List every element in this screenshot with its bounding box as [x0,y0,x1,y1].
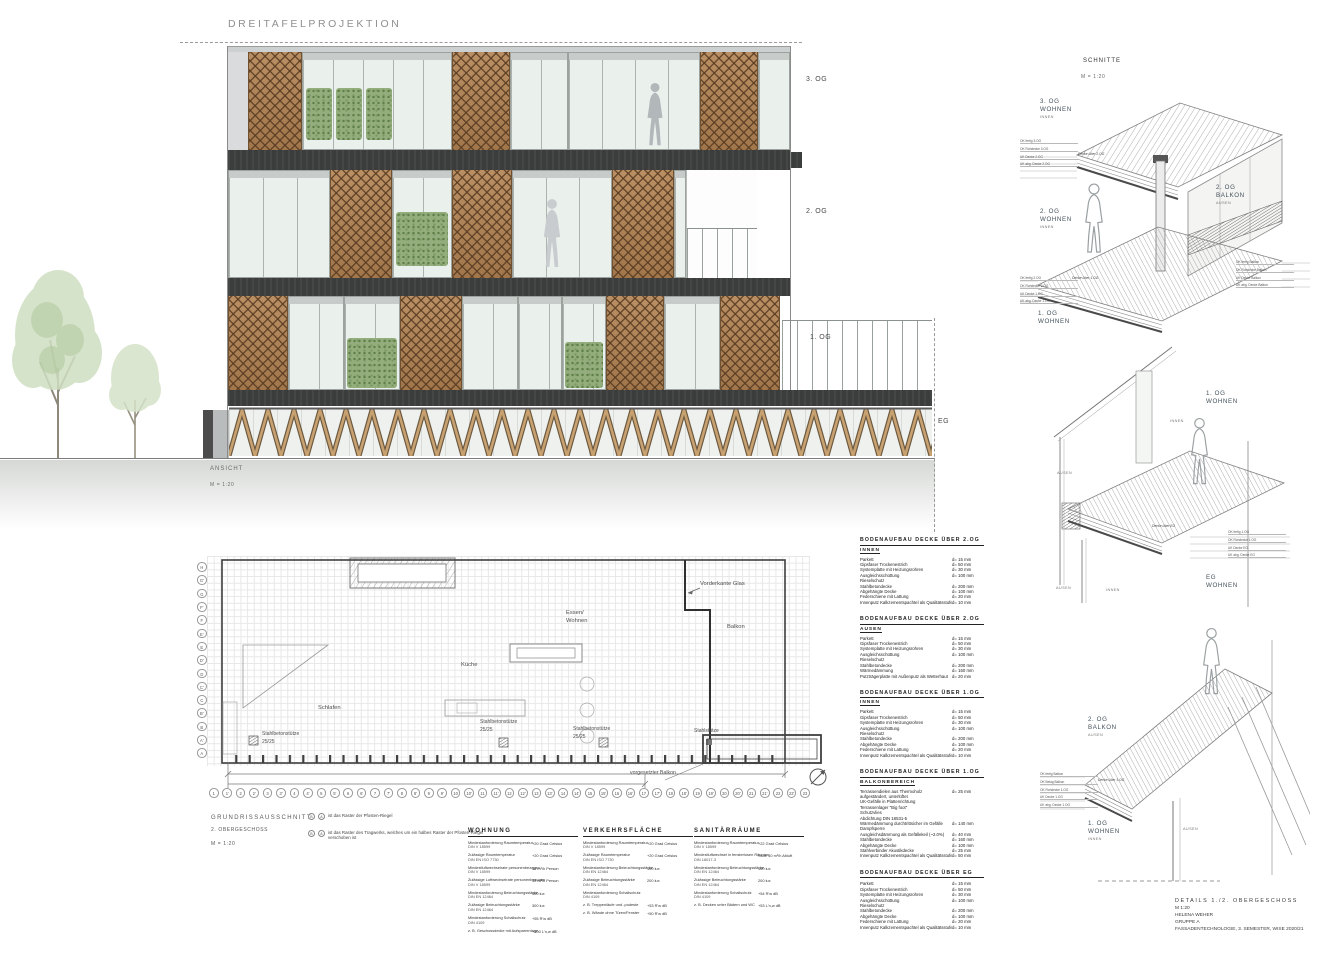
detail3-room-balkon: 2. OG BALKON AUSEN [1088,716,1117,740]
grid-bubble: 19 [693,788,703,798]
grid-bubble: 4' [303,788,313,798]
requirement-row: Mindestluftwechselrate personenbezogenDI… [468,866,578,875]
detail-room-line: WOHNEN [1040,216,1072,224]
facade-panel-glass [228,170,330,278]
details-scale: M = 1:20 [1081,74,1105,80]
requirement-row: Zulässige RaumtemperaturDIN EN ISO 7730+… [583,853,693,862]
level-marker-label: UK abg. Decke Balkon [1236,283,1294,288]
grid-bubble: 13 [532,788,542,798]
level-marker-label: UK abg. Decke 1.OG [1020,299,1078,304]
layer-name: Putzträgerplatte mit Außenputz als Wette… [860,674,952,679]
level-marker-label: OK Rohdecke 2.OG [1020,284,1078,289]
detail-room-line: WOHNEN [1206,582,1238,590]
requirement-row: Zulässige RaumtemperaturDIN EN ISO 7730+… [468,853,578,862]
drawing-sheet: DREITAFELPROJEKTION [0,0,1327,961]
layer-thickness: d= 10 mm [952,753,984,758]
layer-list: Parkettd= 15 mmGipsfaser Trockenestrichd… [860,557,984,606]
person-silhouette-icon [644,82,666,148]
level-marker-label: UK Decke 2.OG [1020,155,1078,160]
level-marker-label: OK fertig 3.OG [1020,139,1078,144]
level-markers: OK fertig 1.OGOK Rohdecke 1.OGUK Decke E… [1228,530,1286,561]
grid-bubble: 21' [760,788,770,798]
facade-panel-lattice [330,170,392,278]
requirement-row: Zulässige BeleuchtungsstärkeDIN EN 12464… [468,903,578,912]
section-title: BODENAUFBAU DECKE ÜBER 2.OG [860,616,984,625]
detail-room-line: WOHNEN [1088,828,1120,836]
requirement-row: z. B. Geschossdecke mit Aufsparrenlage+1… [468,929,578,934]
floor-label-3og: 3. OG [806,76,827,83]
column-label: Stahlbetonstütze 25/25 [573,726,610,741]
grid-bubble: 15 [585,788,595,798]
detail-room-sub: AUSEN [1216,200,1245,208]
level-marker-label: UK Decke EG [1228,546,1286,551]
grid-bubble: E' [197,629,207,639]
requirement-din: DIN 18017-3 [694,858,804,863]
requirements-verkehr: VERKEHRSFLÄCHE Mindestanforderung Raumte… [583,828,693,919]
section-title: BODENAUFBAU DECKE ÜBER 1.OG [860,690,984,699]
detail-room-line: 2. OG [1088,716,1117,724]
requirement-row: Zulässige BeleuchtungsstärkeDIN EN 12464… [694,878,804,887]
eg-entry-dark [203,410,213,458]
facade-panel-glass [288,296,344,390]
column-label-line: 25/25 [480,727,517,735]
balcony-railing [687,228,757,279]
detail1-room-2og: 2. OG WOHNEN INNEN [1040,208,1072,232]
details-title: SCHNITTE [1083,58,1121,64]
level-marker-label: OK fertig 2.OG [1020,276,1078,281]
requirement-value: +55 R'w dB [532,916,552,921]
grid-bubble: 17' [652,788,662,798]
grid-bubble: D [197,669,207,679]
titleblock-course: FASSADENTECHNOLOGIE, 3. SEMESTER, WISE 2… [1175,926,1327,933]
slab-caption: Decke über 1.OG [1098,778,1124,782]
level-marker-label: UK abg. Decke 1.OG [1040,803,1098,808]
section-subtitle: INNEN [860,700,880,706]
grid-bubble: 19' [706,788,716,798]
level-marker-label: OK Belag Balkon [1040,780,1098,785]
detail2-innen: INNEN [1170,419,1184,423]
requirement-value: 300 lux [532,891,545,896]
section-subtitle: BALKONBEREICH [860,780,915,786]
requirement-row: z. B. Treppenläufe und -podeste+53 R'w d… [583,903,693,908]
level-markers: OK fertig BalkonOK Rohdecke BalkonUK Dec… [1236,260,1294,291]
plan-caption-sub: 2. OBERGESCHOSS [211,827,268,833]
layer-list: Parkettd= 15 mmGipsfaser Trockenestrichd… [860,881,984,930]
grid-bubble: 8 [397,788,407,798]
detail-room-line: WOHNEN [1038,318,1070,326]
detail-room-line: EG [1206,574,1238,582]
plant-box [306,88,332,140]
requirement-value: 100 lux [758,866,771,871]
requirement-row: Mindestanforderung BeleuchtungsstärkeDIN… [583,866,693,875]
column-label: Stahlbetonstütze 25/25 [262,731,299,746]
titleblock-project: DETAILS 1./2. OBERGESCHOSS [1175,898,1327,905]
bodenaufbau-section: BODENAUFBAU DECKE ÜBER 2.OG INNEN Parket… [860,537,984,605]
level-marker-label: OK fertig 1.OG [1228,530,1286,535]
detail-room-line: 1. OG [1206,390,1238,398]
grid-bubble: G' [197,575,207,585]
detail-room-line: 2. OG [1040,208,1072,216]
room-label-kueche: Küche [461,662,477,668]
eg-truss-facade [229,406,932,458]
bodenaufbau-section: BODENAUFBAU DECKE ÜBER 2.OG AUSEN Parket… [860,616,984,679]
grid-bubble: 1' [222,788,232,798]
facade-panel-lattice [248,52,302,150]
grid-bubble: 8' [411,788,421,798]
layer-name: Innenputz Kalkzementspachtel als Qualitä… [860,600,952,605]
requirement-row: Mindestanforderung SchallschutzDIN 4109+… [468,916,578,925]
level-marker-label: OK Rohdecke 3.OG [1020,147,1078,152]
legend-symbol: A [318,830,325,837]
requirement-row: Mindestanforderung RaumtemperaturDIN V 1… [583,841,693,850]
requirement-value: 30 m³/h Person [532,866,559,871]
requirement-value: +50 R'w dB [647,911,667,916]
building-edge [227,46,228,458]
grid-bubble: 16' [626,788,636,798]
title-block: DETAILS 1./2. OBERGESCHOSS M 1:20 HELENA… [1175,898,1327,933]
facade-panel-lattice [606,296,664,390]
detail-room-sub: INNEN [1088,836,1120,844]
requirement-din: DIN EN 12464 [468,895,578,900]
level-marker-label: UK abg. Decke 2.OG [1020,162,1078,167]
level-marker-label: OK Rohdecke Balkon [1236,268,1294,273]
person-silhouette-icon [540,198,564,270]
requirement-value: 30 m³/h Person [532,878,559,883]
grid-bubble: 3 [263,788,273,798]
detail-room-sub: INNEN [1040,224,1072,232]
facade-panel-lattice [452,170,512,278]
level-markers: OK fertig 2.OGOK Rohdecke 2.OGUK Decke 1… [1020,276,1078,307]
plan-scale: M = 1:20 [211,841,235,847]
building-edge [790,46,791,390]
requirements-title: SANITÄRRÄUME [694,828,804,837]
facade-panel-glass [758,52,790,150]
column-label: Stahlstütze [694,728,719,734]
grid-bubble: 2 [236,788,246,798]
layer-list: Parkettd= 15 mmGipsfaser Trockenestrichd… [860,636,984,679]
requirement-value: +54 R'w dB [758,891,778,896]
requirement-row: Mindestanforderung SchallschutzDIN 4109 [583,891,693,900]
facade-panel-lattice [612,170,674,278]
facade-panel-lattice [228,296,288,390]
facade-panel-glass [510,52,568,150]
grid-bubble: B [197,722,207,732]
grid-bubble: 4 [290,788,300,798]
bodenaufbau-section: BODENAUFBAU DECKE ÜBER 1.OG BALKONBEREIC… [860,769,984,859]
layer-row: Innenputz Kalkzementspachtel als Qualitä… [860,853,984,858]
requirement-din: DIN EN 12464 [694,870,804,875]
grid-bubble: 6' [357,788,367,798]
layer-name: Innenputz Kalkzementspachtel als Qualitä… [860,853,952,858]
floor-slab [228,150,790,170]
grid-bubble: 14 [558,788,568,798]
grid-bubble: 22 [773,788,783,798]
requirement-value: +53 L'n,w dB [758,903,780,908]
facade-panel-lattice [700,52,758,150]
grid-bubble: 6 [343,788,353,798]
requirement-din: DIN EN 12464 [468,908,578,913]
plant-box [336,88,362,140]
slab-caption: Decke über 2.OG [1078,152,1104,156]
detail1-room-3og: 3. OG WOHNEN INNEN [1040,98,1072,122]
requirement-value: 200 lux [647,878,660,883]
level-markers: OK fertig 3.OGOK Rohdecke 3.OGUK Decke 2… [1020,139,1078,170]
requirement-row: z. B. Wände ohne Türen/Fenster+50 R'w dB [583,911,693,916]
requirement-row: Zulässige Luftwechselrate personenbezoge… [468,878,578,887]
bodenaufbau-section: BODENAUFBAU DECKE ÜBER 1.OG INNEN Parket… [860,690,984,758]
detail-room-line: 1. OG [1038,310,1070,318]
detail1-room-1og: 1. OG WOHNEN [1038,310,1070,325]
grid-bubble: D' [197,655,207,665]
facade-panel-glass [674,170,686,278]
requirement-value: +20 Grad Celsius [647,853,677,858]
floor-label-eg: EG [938,418,949,425]
requirements-wohnung: WOHNUNG Mindestanforderung Raumtemperatu… [468,828,578,937]
requirement-value: +20 Grad Celsius [647,841,677,846]
grid-bubble: 22' [787,788,797,798]
grid-bubble: C' [197,682,207,692]
detail-room-sub: AUSEN [1088,732,1117,740]
requirement-row: Mindestanforderung SchallschutzDIN 4109+… [694,891,804,900]
column-label-line: Stahlbetonstütze [262,731,299,739]
layer-list: Terrassendielen aus Thermoholzd= 25 mmau… [860,789,984,859]
layer-row: Innenputz Kalkzementspachtel als Qualitä… [860,925,984,930]
requirement-din: DIN V 18599 [583,845,693,850]
detail-room-line: WOHNEN [1040,106,1072,114]
requirement-din: DIN V 18599 [468,845,578,850]
floor-label-2og: 2. OG [806,208,827,215]
grid-bubble: 3' [276,788,286,798]
room-label-schlafen: Schlafen [318,705,341,711]
balcony-bay [686,170,757,278]
grid-bubble: E [197,642,207,652]
layer-row: Putzträgerplatte mit Außenputz als Wette… [860,674,984,679]
requirement-din: DIN 4109 [468,921,578,926]
level-marker-label: OK Rohdecke 1.OG [1040,788,1098,793]
floor-slab [228,390,932,406]
legend-row: B A ist das Raster der Pfosten-Riegel [308,813,498,820]
column-label-line: Stahlbetonstütze [573,726,610,734]
detail-section-3 [1040,615,1310,887]
grid-bubble: 5' [330,788,340,798]
level-markers: OK fertig BalkonOK Belag BalkonOK Rohdec… [1040,772,1098,811]
requirement-name: z. B. Treppenläufe und -podeste [583,903,693,908]
grid-bubble: 10 [451,788,461,798]
floor-slab-edge [790,152,802,168]
note-vorderkante-glas: Vorderkante Glas [700,581,745,587]
requirement-name: z. B. Decken unter Bädern und WC [694,903,804,908]
requirement-row: Mindestanforderung BeleuchtungsstärkeDIN… [468,891,578,900]
requirement-din: DIN V 18599 [694,845,804,850]
plan-caption: GRUNDRISSAUSSCHNITT [211,815,312,821]
facade-panel-glass [568,52,700,150]
column-label: Stahlbetonstütze 25/25 [480,719,517,734]
grid-bubble: 12' [518,788,528,798]
facade-panel-lattice [452,52,510,150]
plant-box [347,338,397,388]
column-label-line: 25/25 [262,739,299,747]
elevation-drawing: 3. OG 2. OG 1. OG EG ANSICHT M = 1:20 [0,0,960,540]
grid-bubble: 20 [720,788,730,798]
grid-bubble: 7 [370,788,380,798]
detail2-aussen2: AUSEN [1056,586,1071,590]
elevation-caption: ANSICHT [210,466,243,472]
layer-row: Innenputz Kalkzementspachtel als Qualitä… [860,600,984,605]
detail2-room-eg: EG WOHNEN [1206,574,1238,589]
titleblock-scale: M 1:20 [1175,905,1327,912]
slab-caption: Decke über EG [1152,524,1175,528]
requirement-row: Mindestanforderung BeleuchtungsstärkeDIN… [694,866,804,875]
detail-section-2 [1040,345,1290,607]
terrace-railing [782,320,932,391]
legend-symbol: B [308,830,315,837]
requirement-name: z. B. Geschossdecke mit Aufsparrenlage [468,929,578,934]
grid-bubble: 11' [491,788,501,798]
room-label-essen-wohnen: Essen/ Wohnen [566,610,588,625]
grid-bubble: A' [197,735,207,745]
room-label-line: Essen/ [566,610,588,618]
section-title: BODENAUFBAU DECKE ÜBER 1.OG [860,769,984,778]
grid-bubble: B' [197,708,207,718]
facade-panel-glass [462,296,518,390]
grid-bubble: F' [197,602,207,612]
requirement-value: +20 Grad Celsius [532,841,562,846]
floor-plan-drawing [195,552,840,792]
requirement-din: DIN EN ISO 7730 [468,858,578,863]
grid-bubble: 18' [679,788,689,798]
layer-list: Parkettd= 15 mmGipsfaser Trockenestrichd… [860,709,984,758]
grid-bubble: 13' [545,788,555,798]
detail-room-line: BALKON [1216,192,1245,200]
requirement-row: Zulässige BeleuchtungsstärkeDIN EN 12464… [583,878,693,887]
detail3-room-1og: 1. OG WOHNEN INNEN [1088,820,1120,844]
requirement-din: DIN EN 12464 [694,883,804,888]
grid-bubble: 10' [464,788,474,798]
grid-bubble: 14' [572,788,582,798]
grid-bubble: 9' [437,788,447,798]
detail-room-line: 1. OG [1088,820,1120,828]
plant-box [396,212,448,266]
detail-room-line: BALKON [1088,724,1117,732]
grid-bubble: 9 [424,788,434,798]
requirement-din: DIN V 18599 [468,883,578,888]
requirement-value: 200 lux [758,878,771,883]
level-marker-label: UK Decke Balkon [1236,276,1294,281]
requirements-list: Mindestanforderung RaumtemperaturDIN V 1… [468,841,578,934]
requirements-list: Mindestanforderung RaumtemperaturDIN V 1… [694,841,804,908]
requirement-din: DIN EN 12464 [583,883,693,888]
requirement-value: Stufe 40 m³/h Abluft [758,853,792,858]
requirements-sanitaer: SANITÄRRÄUME Mindestanforderung Raumtemp… [694,828,804,911]
grid-bubble: C [197,695,207,705]
section-title: BODENAUFBAU DECKE ÜBER EG [860,870,984,879]
requirement-value: +22 Grad Celsius [758,841,788,846]
detail-room-line: 3. OG [1040,98,1072,106]
requirement-row: z. B. Decken unter Bädern und WC+53 L'n,… [694,903,804,908]
layer-thickness: d= 50 mm [952,853,984,858]
facade-panel-lattice [400,296,462,390]
grid-bubble: 21 [747,788,757,798]
grid-bubble: F [197,615,207,625]
level-marker-label: UK Decke 1.OG [1040,795,1098,800]
detail2-room-1og: 1. OG WOHNEN [1206,390,1238,405]
grid-bubble: 15' [599,788,609,798]
requirement-din: DIN EN 12464 [583,870,693,875]
grid-bubble: 5 [317,788,327,798]
grid-axis-letters: HG'GF'FE'ED'DC'CB'BA'A [197,562,207,758]
level-marker-label: UK abg. Decke EG [1228,553,1286,558]
titleblock-author: HELENA WEHER [1175,912,1327,919]
detail2-aussen: AUSEN [1057,471,1072,475]
detail3-wall-aussen: AUSEN [1183,827,1198,831]
bodenaufbau-section: BODENAUFBAU DECKE ÜBER EG Parkettd= 15 m… [860,870,984,930]
legend-symbol: B [308,813,315,820]
slab-caption: Decke über 1.OG [1072,276,1098,280]
grid-bubble: 23 [800,788,810,798]
requirements-list: Mindestanforderung RaumtemperaturDIN V 1… [583,841,693,916]
section-cut-line [934,318,935,532]
legend-text: ist das Raster der Pfosten-Riegel [328,813,392,818]
grid-bubble: G [197,589,207,599]
grid-bubble: 2' [249,788,259,798]
facade-panel-glass [518,296,562,390]
grid-axis-numbers: 11'22'33'44'55'66'77'88'99'1010'1111'121… [209,788,810,798]
requirement-din: DIN V 18599 [468,870,578,875]
section-subtitle: INNEN [860,548,880,554]
plant-box [366,88,392,140]
requirement-value: +100 L'n,w dB [532,929,557,934]
layer-thickness: d= 20 mm [952,674,984,679]
floor-label-1og: 1. OG [810,334,831,341]
column-label-line: 25/25 [573,734,610,742]
detail-room-sub: INNEN [1040,114,1072,122]
detail2-innen2: INNEN [1106,588,1120,592]
requirement-value: +20 Grad Celsius [532,853,562,858]
level-marker-label: OK fertig Balkon [1236,260,1294,265]
elevation-scale: M = 1:20 [210,482,234,488]
layer-thickness: d= 10 mm [952,925,984,930]
detail1-room-balkon: 2. OG BALKON AUSEN [1216,184,1245,208]
titleblock-group: GRUPPE A [1175,919,1327,926]
level-marker-label: UK Decke 1.OG [1020,292,1078,297]
grid-bubble: 20' [733,788,743,798]
column-label-line: Stahlbetonstütze [480,719,517,727]
grid-bubble: 11 [478,788,488,798]
room-label-line: Wohnen [566,618,588,626]
requirement-row: Mindestluftwechsel in fensterlosen Räume… [694,853,804,862]
grid-bubble: 17 [639,788,649,798]
grid-bubble: H [197,562,207,572]
grid-bubble: 16 [612,788,622,798]
facade-panel-glass [664,296,720,390]
requirement-row: Mindestanforderung RaumtemperaturDIN V 1… [468,841,578,850]
grid-bubble: 1 [209,788,219,798]
ground-line [0,458,935,459]
plant-box [565,342,603,388]
requirement-value: +53 R'w dB [647,903,667,908]
detail-room-line: 2. OG [1216,184,1245,192]
tree-icon [0,240,185,465]
layer-name: Innenputz Kalkzementspachtel als Qualitä… [860,753,952,758]
section-title: BODENAUFBAU DECKE ÜBER 2.OG [860,537,984,546]
grid-bubble: A [197,748,207,758]
requirement-name: z. B. Wände ohne Türen/Fenster [583,911,693,916]
grid-bubble: 18 [666,788,676,798]
section-subtitle: AUSEN [860,627,882,633]
floor-slab [228,278,790,296]
ground-wash [0,460,935,530]
detail-room-line: WOHNEN [1206,398,1238,406]
